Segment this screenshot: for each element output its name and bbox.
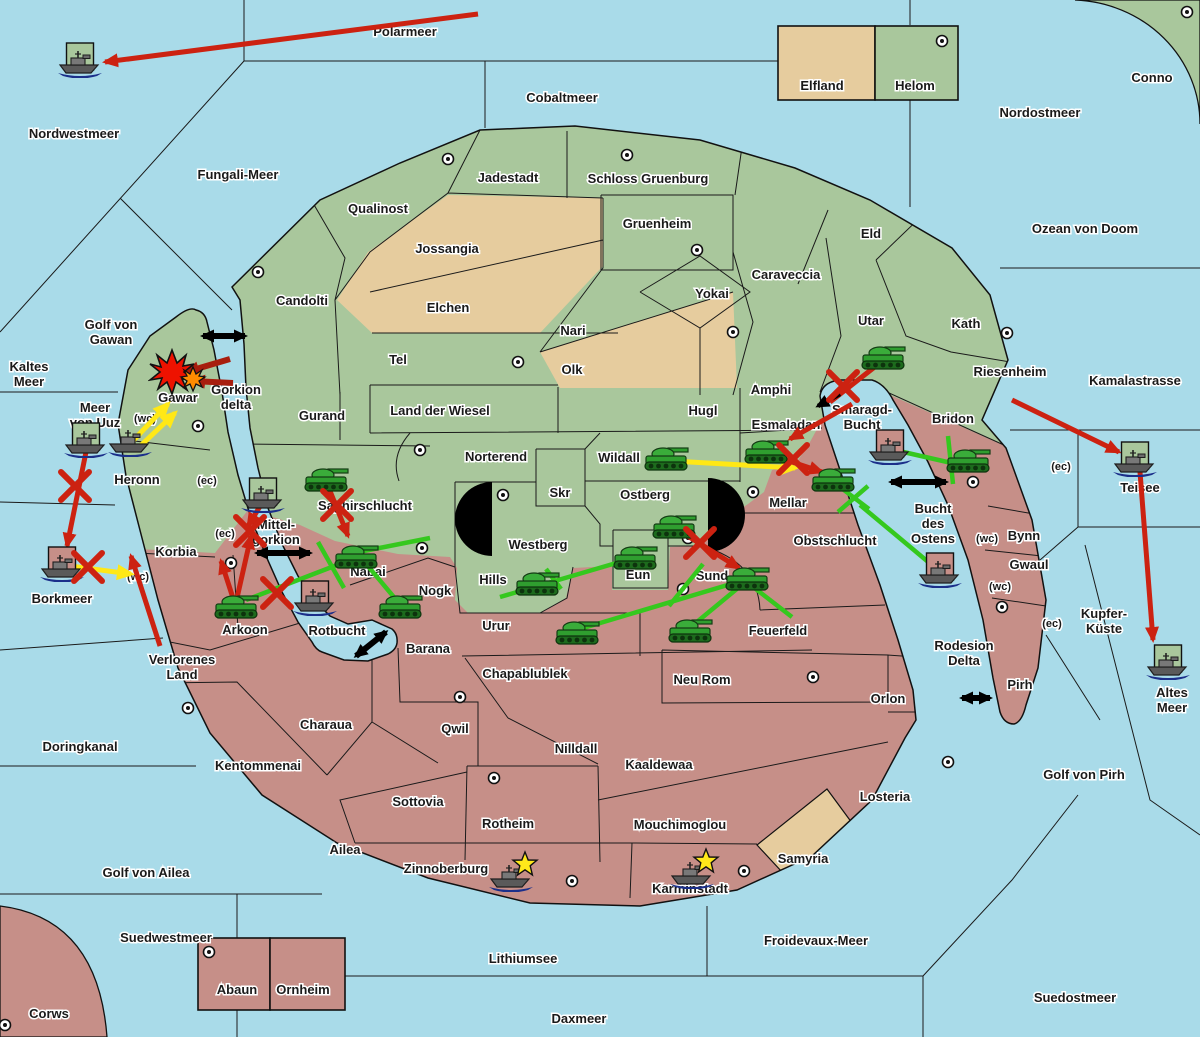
war-map: PolarmeerNordwestmeerCobaltmeerNordostme…	[0, 0, 1200, 1037]
region-label-hills: Hills	[479, 572, 506, 587]
sea-label-suedostmeer: Suedostmeer	[1034, 990, 1116, 1005]
coast-label-wc: (wc)	[976, 533, 998, 545]
sea-label-nordostmeer: Nordostmeer	[1000, 105, 1081, 120]
region-label-samyria: Samyria	[778, 851, 829, 866]
supply-center-dot	[692, 245, 703, 256]
supply-center-dot	[193, 421, 204, 432]
supply-center-dot	[513, 357, 524, 368]
region-label-qualinost: Qualinost	[348, 201, 409, 216]
sea-label-kamalastrasse: Kamalastrasse	[1089, 373, 1181, 388]
region-label-amphi: Amphi	[751, 382, 791, 397]
region-label-riesenheim: Riesenheim	[974, 364, 1047, 379]
supply-center-dot	[253, 267, 264, 278]
region-label-wildall: Wildall	[598, 450, 640, 465]
region-label-obstschlucht: Obstschlucht	[793, 533, 877, 548]
region-label-gwaul: Gwaul	[1009, 557, 1048, 572]
region-label-bridon: Bridon	[932, 411, 974, 426]
region-label-jossangia: Jossangia	[415, 241, 479, 256]
sea-label-daxmeer: Daxmeer	[552, 1011, 607, 1026]
region-label-losteria: Losteria	[860, 789, 911, 804]
region-label-land-der-wiesel: Land der Wiesel	[390, 403, 490, 418]
region-label-eld: Eld	[861, 226, 881, 241]
region-label-heronn: Heronn	[114, 472, 160, 487]
region-label-skr: Skr	[550, 485, 571, 500]
sea-label-suedwestmeer: Suedwestmeer	[120, 930, 212, 945]
sea-label-golf-von-pirh: Golf von Pirh	[1043, 767, 1125, 782]
region-label-hugl: Hugl	[689, 403, 718, 418]
region-label-ailea: Ailea	[329, 842, 361, 857]
region-label-helom: Helom	[895, 78, 935, 93]
region-label-rotheim: Rotheim	[482, 816, 534, 831]
supply-center-dot	[748, 487, 759, 498]
supply-center-dot	[443, 154, 454, 165]
region-label-caraveccia: Caraveccia	[752, 267, 821, 282]
region-label-westberg: Westberg	[509, 537, 568, 552]
war-map-stage: PolarmeerNordwestmeerCobaltmeerNordostme…	[0, 0, 1200, 1037]
sea-label-nordwestmeer: Nordwestmeer	[29, 126, 119, 141]
supply-center-dot	[567, 876, 578, 887]
supply-center-dot	[498, 490, 509, 501]
region-label-ostberg: Ostberg	[620, 487, 670, 502]
supply-center-dot	[739, 866, 750, 877]
supply-center-dot	[1182, 7, 1193, 18]
region-label-gurand: Gurand	[299, 408, 345, 423]
sea-label-altes-meer: AltesMeer	[1156, 685, 1188, 715]
region-label-utar: Utar	[858, 313, 884, 328]
region-label-nilldall: Nilldall	[555, 741, 598, 756]
supply-center-dot	[997, 602, 1008, 613]
region-label-ornheim: Ornheim	[276, 982, 329, 997]
battle-explosion-icon	[181, 367, 205, 391]
region-label-barana: Barana	[406, 641, 451, 656]
supply-center-dot	[1002, 328, 1013, 339]
region-label-arkoon: Arkoon	[222, 622, 268, 637]
region-label-charaua: Charaua	[300, 717, 353, 732]
region-label-schloss-gruenburg: Schloss Gruenburg	[588, 171, 709, 186]
coast-label-ec: (ec)	[1051, 461, 1071, 473]
region-label-sottovia: Sottovia	[392, 794, 444, 809]
region-label-abaun: Abaun	[217, 982, 258, 997]
sea-label-kupfer-k-ste: Kupfer-Küste	[1081, 606, 1127, 636]
sea-label-lithiumsee: Lithiumsee	[489, 951, 558, 966]
supply-center-dot	[183, 703, 194, 714]
region-label-korbia: Korbia	[155, 544, 197, 559]
supply-center-dot	[968, 477, 979, 488]
region-label-urur: Urur	[482, 618, 509, 633]
supply-center-dot	[622, 150, 633, 161]
region-label-gawar: Gawar	[158, 390, 198, 405]
sea-label-doringkanal: Doringkanal	[42, 739, 117, 754]
supply-center-dot	[226, 558, 237, 569]
region-label-chapablublek: Chapablublek	[482, 666, 568, 681]
region-label-conno: Conno	[1131, 70, 1172, 85]
sea-label-froidevaux-meer: Froidevaux-Meer	[764, 933, 868, 948]
supply-center-dot	[728, 327, 739, 338]
region-label-qwil: Qwil	[441, 721, 468, 736]
region-label-norterend: Norterend	[465, 449, 527, 464]
supply-center-dot	[937, 36, 948, 47]
coast-label-ec: (ec)	[197, 475, 217, 487]
region-label-nogk: Nogk	[419, 583, 452, 598]
supply-center-dot	[415, 445, 426, 456]
sea-label-golf-von-gawan: Golf vonGawan	[85, 317, 138, 347]
sea-label-kaltes-meer: KaltesMeer	[9, 359, 48, 389]
sea-label-fungali-meer: Fungali-Meer	[198, 167, 279, 182]
region-label-bynn: Bynn	[1008, 528, 1041, 543]
sea-label-cobaltmeer: Cobaltmeer	[526, 90, 598, 105]
supply-center-dot	[417, 543, 428, 554]
region-label-candolti: Candolti	[276, 293, 328, 308]
region-label-kath: Kath	[952, 316, 981, 331]
supply-center-dot	[943, 757, 954, 768]
supply-center-dot	[808, 672, 819, 683]
region-label-tel: Tel	[389, 352, 407, 367]
region-label-kaaldewaa: Kaaldewaa	[625, 757, 693, 772]
region-label-jadestadt: Jadestadt	[478, 170, 539, 185]
sea-label-ozean-von-doom: Ozean von Doom	[1032, 221, 1138, 236]
region-label-zinnoberburg: Zinnoberburg	[404, 861, 489, 876]
region-label-elchen: Elchen	[427, 300, 470, 315]
coast-label-ec: (ec)	[1042, 618, 1062, 630]
region-label-elfland: Elfland	[800, 78, 843, 93]
region-box-ornheim	[270, 938, 345, 1010]
coast-label-wc: (wc)	[989, 581, 1011, 593]
region-label-kentommenai: Kentommenai	[215, 758, 301, 773]
region-label-olk: Olk	[562, 362, 584, 377]
region-label-mellar: Mellar	[769, 495, 807, 510]
supply-center-dot	[455, 692, 466, 703]
region-label-pirh: Pirh	[1007, 677, 1032, 692]
sea-label-borkmeer: Borkmeer	[32, 591, 93, 606]
coast-label-ec: (ec)	[215, 528, 235, 540]
region-label-gruenheim: Gruenheim	[623, 216, 692, 231]
region-label-neu-rom: Neu Rom	[673, 672, 730, 687]
region-label-orlon: Orlon	[871, 691, 906, 706]
supply-center-dot	[489, 773, 500, 784]
region-label-corws: Corws	[29, 1006, 69, 1021]
region-label-feuerfeld: Feuerfeld	[749, 623, 808, 638]
sea-label-golf-von-ailea: Golf von Ailea	[103, 865, 191, 880]
supply-center-dot	[0, 1020, 11, 1031]
region-label-mouchimoglou: Mouchimoglou	[634, 817, 726, 832]
supply-center-dot	[204, 947, 215, 958]
region-label-nari: Nari	[560, 323, 585, 338]
region-label-yokai: Yokai	[695, 286, 729, 301]
sea-label-rotbucht: Rotbucht	[308, 623, 366, 638]
